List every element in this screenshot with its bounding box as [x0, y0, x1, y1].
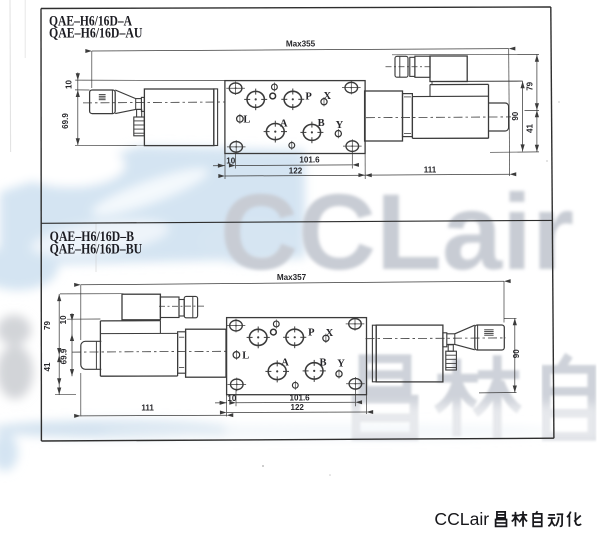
svg-text:B: B — [319, 357, 326, 368]
svg-text:69.9: 69.9 — [60, 348, 69, 364]
svg-text:B: B — [318, 118, 325, 129]
svg-text:10: 10 — [64, 80, 73, 89]
svg-text:P: P — [308, 328, 315, 339]
svg-text:QAE–H6/16D–AU: QAE–H6/16D–AU — [49, 25, 143, 41]
svg-text:90: 90 — [511, 111, 520, 120]
svg-text:X: X — [326, 328, 334, 339]
svg-text:A: A — [281, 357, 289, 368]
svg-text:122: 122 — [290, 403, 304, 412]
svg-text:L: L — [243, 114, 250, 125]
svg-text:111: 111 — [424, 166, 437, 175]
svg-text:CCLair: CCLair — [220, 171, 574, 292]
svg-text:L: L — [242, 350, 249, 361]
svg-text:Y: Y — [336, 120, 344, 131]
svg-text:90: 90 — [512, 349, 521, 358]
svg-text:A: A — [280, 119, 288, 130]
svg-text:101.6: 101.6 — [299, 156, 320, 165]
svg-text:79: 79 — [526, 81, 535, 90]
svg-text:QAE–H6/16D–BU: QAE–H6/16D–BU — [50, 241, 143, 257]
svg-text:P: P — [305, 91, 312, 102]
svg-text:122: 122 — [289, 166, 303, 175]
svg-text:Max357: Max357 — [277, 273, 307, 282]
svg-text:X: X — [324, 91, 332, 102]
svg-text:101.6: 101.6 — [290, 394, 311, 403]
svg-text:79: 79 — [43, 321, 52, 330]
svg-text:CCLair: CCLair — [434, 509, 489, 529]
svg-text:69.9: 69.9 — [61, 113, 70, 129]
svg-text:10: 10 — [59, 315, 68, 324]
svg-text:10: 10 — [226, 157, 235, 166]
svg-text:41: 41 — [43, 362, 52, 371]
svg-text:Max355: Max355 — [286, 39, 316, 48]
svg-text:10: 10 — [227, 394, 236, 403]
svg-text:Y: Y — [337, 359, 345, 370]
svg-text:111: 111 — [141, 404, 154, 413]
svg-text:41: 41 — [526, 124, 535, 133]
